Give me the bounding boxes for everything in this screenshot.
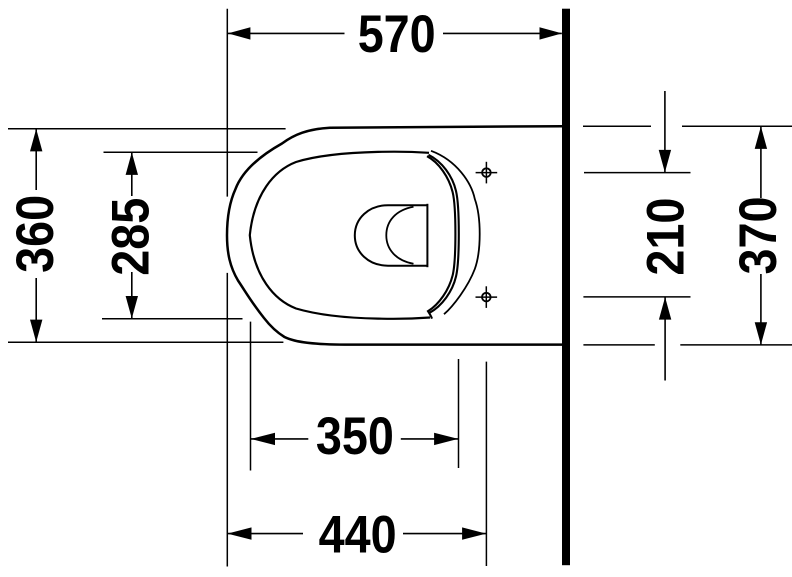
svg-text:210: 210 bbox=[636, 198, 695, 276]
svg-text:570: 570 bbox=[358, 5, 436, 64]
svg-text:350: 350 bbox=[316, 407, 394, 466]
svg-text:360: 360 bbox=[6, 195, 65, 273]
svg-text:370: 370 bbox=[729, 197, 788, 275]
svg-text:285: 285 bbox=[101, 198, 160, 276]
svg-text:440: 440 bbox=[319, 506, 397, 565]
